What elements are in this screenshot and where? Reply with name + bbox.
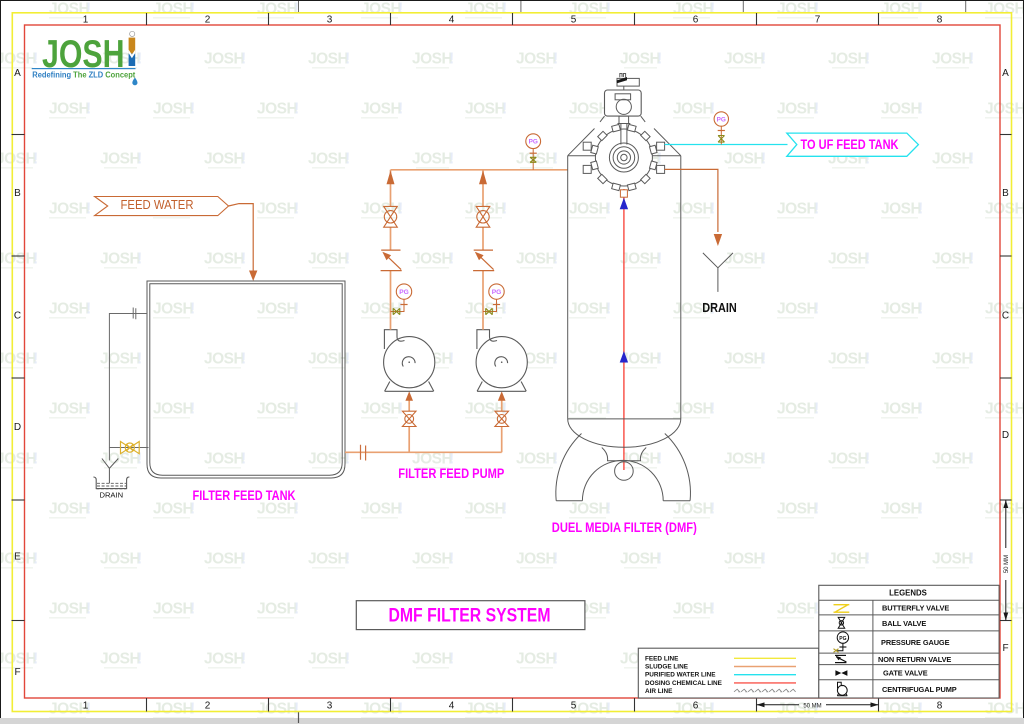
svg-text:2: 2 <box>205 15 211 26</box>
svg-text:B: B <box>1002 188 1009 199</box>
svg-text:BALL VALVE: BALL VALVE <box>882 619 926 628</box>
svg-text:BUTTERFLY VALVE: BUTTERFLY VALVE <box>882 604 949 613</box>
svg-text:4: 4 <box>449 15 455 26</box>
svg-text:NON RETURN VALVE: NON RETURN VALVE <box>878 655 951 664</box>
svg-text:F: F <box>14 667 20 678</box>
svg-text:3: 3 <box>327 15 333 26</box>
svg-text:FEED WATER: FEED WATER <box>121 197 194 212</box>
svg-text:3: 3 <box>327 701 333 712</box>
svg-text:A: A <box>1002 68 1009 79</box>
svg-text:CENTRIFUGAL PUMP: CENTRIFUGAL PUMP <box>882 685 957 694</box>
svg-text:FEED LINE: FEED LINE <box>645 655 679 662</box>
svg-text:D: D <box>1002 430 1009 441</box>
svg-text:7: 7 <box>815 15 821 26</box>
svg-text:1: 1 <box>83 701 89 712</box>
svg-text:PG: PG <box>839 636 846 642</box>
svg-text:C: C <box>14 311 21 322</box>
svg-text:1: 1 <box>83 15 89 26</box>
svg-text:50 MM: 50 MM <box>803 703 821 709</box>
svg-text:C: C <box>1002 311 1009 322</box>
svg-text:PG: PG <box>492 289 502 296</box>
svg-text:LEGENDS: LEGENDS <box>889 589 927 598</box>
svg-text:DOSING CHEMICAL LINE: DOSING CHEMICAL LINE <box>645 680 723 687</box>
svg-text:SLUDGE LINE: SLUDGE LINE <box>645 664 689 671</box>
svg-text:DMF FILTER SYSTEM: DMF FILTER SYSTEM <box>389 606 551 627</box>
svg-text:AIR LINE: AIR LINE <box>645 688 673 695</box>
svg-text:6: 6 <box>693 15 699 26</box>
svg-text:A: A <box>14 68 21 79</box>
svg-text:8: 8 <box>937 15 943 26</box>
svg-text:DRAIN: DRAIN <box>99 491 123 500</box>
svg-text:PURIFIED WATER LINE: PURIFIED WATER LINE <box>645 672 716 679</box>
svg-text:6: 6 <box>693 701 699 712</box>
svg-text:DRAIN: DRAIN <box>702 300 737 315</box>
svg-text:FILTER FEED TANK: FILTER FEED TANK <box>193 487 296 503</box>
svg-text:GATE VALVE: GATE VALVE <box>883 668 928 677</box>
svg-text:FILTER FEED PUMP: FILTER FEED PUMP <box>398 466 504 481</box>
svg-text:F: F <box>1002 643 1008 654</box>
svg-text:2: 2 <box>205 701 211 712</box>
svg-text:D: D <box>14 422 21 433</box>
svg-text:5: 5 <box>571 701 577 712</box>
svg-text:B: B <box>14 188 21 199</box>
svg-text:E: E <box>14 552 21 563</box>
svg-text:4: 4 <box>449 701 455 712</box>
svg-text:PG: PG <box>399 289 409 296</box>
svg-text:Redefining The ZLD Concept: Redefining The ZLD Concept <box>32 70 135 79</box>
svg-text:DUEL MEDIA FILTER (DMF): DUEL MEDIA FILTER (DMF) <box>552 520 697 535</box>
svg-text:PRESSURE GAUGE: PRESSURE GAUGE <box>881 638 950 647</box>
svg-text:TO UF FEED TANK: TO UF FEED TANK <box>801 136 899 152</box>
svg-text:PG: PG <box>529 139 538 146</box>
svg-text:8: 8 <box>937 701 943 712</box>
svg-text:5: 5 <box>571 15 577 26</box>
svg-text:PG: PG <box>717 116 726 123</box>
svg-text:50 MM: 50 MM <box>1004 555 1010 573</box>
